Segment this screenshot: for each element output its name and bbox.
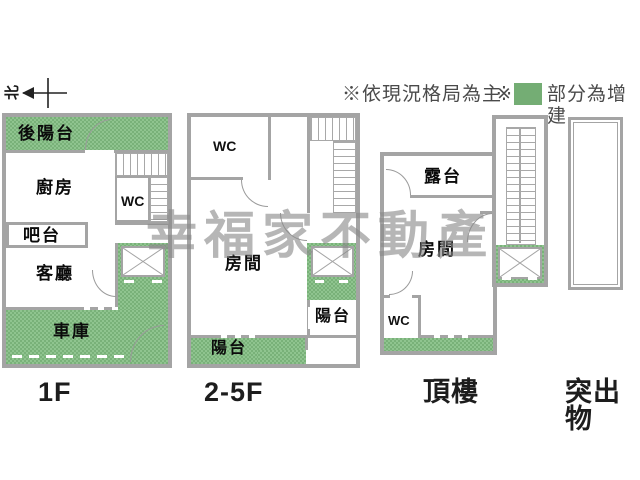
staircase — [115, 153, 168, 176]
living-label: 客廳 — [36, 265, 74, 282]
staircase — [506, 127, 536, 245]
wc-label: WC — [213, 139, 236, 153]
floor-name-2-5f: 2-5F — [204, 379, 264, 406]
floorplan-canvas: 北 ※依現況格局為主 ※ 部分為增建 後陽台 廚房 WC 吧台 客廳 — [0, 0, 640, 480]
wall — [268, 117, 271, 180]
side-balcony-label: 陽台 — [315, 309, 351, 325]
watermark: 幸福家不動產 — [146, 210, 494, 261]
sliding-door — [308, 307, 310, 329]
elevator-door-mark — [124, 280, 134, 283]
wall — [305, 338, 308, 350]
wc-label: WC — [388, 314, 410, 327]
elevator-door-mark — [315, 280, 324, 283]
wall — [410, 195, 493, 198]
floor-name-roof: 頂樓 — [423, 379, 479, 406]
elevator-door-mark — [152, 280, 162, 283]
garage-label: 車庫 — [53, 323, 91, 340]
note-addition-mark: ※ — [496, 84, 513, 106]
wc-room: WC — [115, 176, 150, 222]
roof-balcony-area — [384, 338, 493, 351]
door-arc — [389, 271, 413, 295]
staircase — [333, 141, 356, 213]
note-current-layout: ※依現況格局為主 — [342, 84, 502, 106]
wall — [6, 150, 85, 153]
staircase — [310, 117, 356, 141]
wc-label: WC — [121, 194, 144, 208]
wall — [307, 335, 356, 338]
floor-name-1f: 1F — [38, 379, 72, 406]
elevator-door-mark — [528, 277, 537, 280]
door-arc — [92, 270, 116, 297]
floor-name-protrusion: 突出物 — [565, 379, 640, 433]
north-indicator: 北 — [5, 74, 71, 112]
plan-protrusion — [568, 117, 623, 290]
bar-counter: 吧台 — [6, 222, 88, 248]
rear-balcony-label: 後陽台 — [18, 125, 75, 142]
wall — [412, 295, 421, 298]
elevator — [498, 247, 542, 279]
terrace-label: 露台 — [424, 168, 462, 185]
addition-color-swatch — [514, 83, 542, 105]
kitchen-label: 廚房 — [36, 179, 74, 196]
bottom-balcony-step — [258, 350, 306, 364]
wall — [384, 295, 390, 298]
stair-rail — [519, 129, 521, 243]
roof-stair-tower — [492, 115, 548, 287]
door-arc — [241, 180, 268, 207]
garage-entrance — [12, 355, 128, 358]
door-arc — [386, 169, 411, 195]
bottom-balcony-label: 陽台 — [211, 341, 247, 357]
elevator-door-mark — [502, 277, 511, 280]
wall — [191, 177, 243, 180]
bar-label: 吧台 — [23, 227, 61, 244]
north-label: 北 — [5, 85, 20, 100]
elevator-door-mark — [339, 280, 348, 283]
wall — [418, 295, 421, 338]
